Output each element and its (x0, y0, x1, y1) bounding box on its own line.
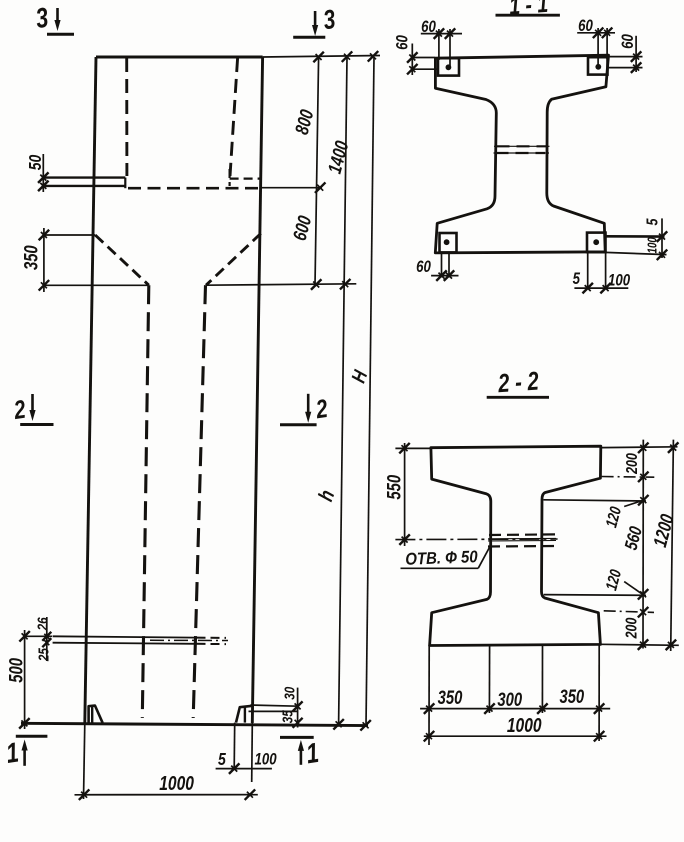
svg-text:200: 200 (624, 453, 642, 475)
svg-text:5: 5 (644, 218, 662, 226)
svg-text:350: 350 (438, 687, 463, 708)
svg-text:300: 300 (497, 689, 522, 710)
svg-text:100: 100 (608, 271, 631, 290)
svg-text:30: 30 (281, 686, 298, 699)
svg-text:60: 60 (578, 16, 593, 35)
svg-text:500: 500 (6, 658, 27, 683)
svg-text:60: 60 (393, 35, 412, 50)
svg-text:2 - 2: 2 - 2 (496, 366, 539, 398)
svg-text:550: 550 (384, 474, 405, 499)
svg-text:26: 26 (34, 617, 51, 631)
svg-text:350: 350 (21, 245, 42, 270)
svg-text:50: 50 (25, 155, 45, 171)
svg-text:1 - 1: 1 - 1 (508, 0, 549, 20)
svg-text:100: 100 (254, 750, 277, 769)
svg-text:60: 60 (421, 18, 436, 37)
svg-text:350: 350 (559, 686, 584, 707)
svg-text:60: 60 (416, 257, 431, 276)
svg-text:5: 5 (218, 749, 227, 769)
svg-text:35: 35 (279, 710, 296, 723)
svg-text:ОТВ. Ф 50: ОТВ. Ф 50 (405, 548, 478, 569)
svg-text:100: 100 (647, 237, 660, 254)
svg-text:1000: 1000 (159, 772, 194, 794)
svg-text:5: 5 (573, 269, 581, 288)
svg-text:60: 60 (618, 34, 637, 49)
svg-text:200: 200 (623, 618, 641, 640)
svg-text:1000: 1000 (507, 714, 542, 736)
svg-text:25: 25 (35, 648, 52, 662)
